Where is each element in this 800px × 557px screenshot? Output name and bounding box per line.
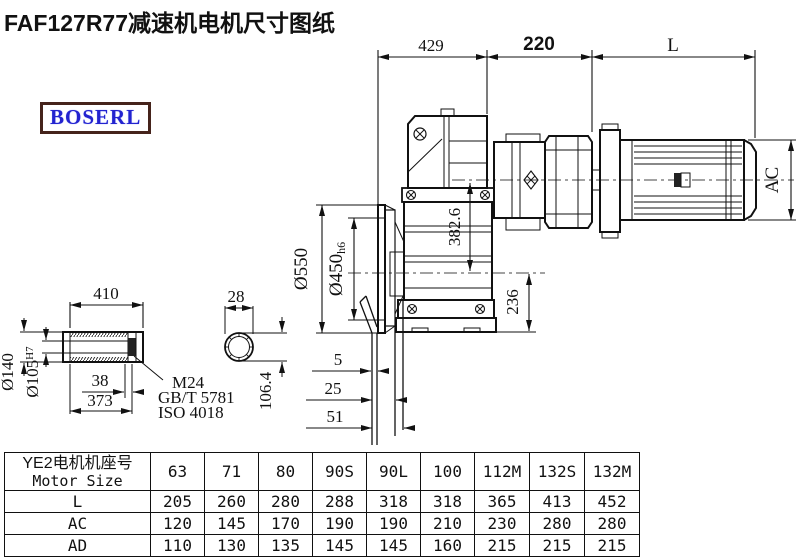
col-112M: 112M — [475, 453, 530, 491]
row-label-AD: AD — [5, 535, 151, 557]
cell: 452 — [585, 491, 640, 513]
motor-size-table: YE2电机机座号 Motor Size 63 71 80 90S 90L 100… — [4, 452, 640, 557]
cell: 280 — [530, 513, 585, 535]
cell: 145 — [313, 535, 367, 557]
label-iso4018: ISO 4018 — [158, 403, 224, 422]
cell: 215 — [475, 535, 530, 557]
table-header-row: YE2电机机座号 Motor Size 63 71 80 90S 90L 100… — [5, 453, 640, 491]
dim-L: L — [667, 35, 679, 56]
dim-5: 5 — [334, 350, 343, 369]
top-dimensions — [378, 50, 755, 205]
col-80: 80 — [259, 453, 313, 491]
cell: 365 — [475, 491, 530, 513]
dim-410: 410 — [93, 284, 119, 303]
dim-106-4: 106.4 — [256, 371, 275, 410]
col-90L: 90L — [367, 453, 421, 491]
col-100: 100 — [421, 453, 475, 491]
col-132M: 132M — [585, 453, 640, 491]
cell: 413 — [530, 491, 585, 513]
gearbox-housing — [390, 109, 496, 332]
cell: 260 — [205, 491, 259, 513]
cell: 215 — [585, 535, 640, 557]
col-63: 63 — [151, 453, 205, 491]
cell: 288 — [313, 491, 367, 513]
dim-25: 25 — [325, 379, 342, 398]
cell: 210 — [421, 513, 475, 535]
cell: 190 — [313, 513, 367, 535]
dim-51: 51 — [327, 407, 344, 426]
cell: 280 — [585, 513, 640, 535]
dim-AC: AC — [762, 167, 783, 193]
cell: 170 — [259, 513, 313, 535]
header-en: Motor Size — [5, 473, 150, 490]
cell: 120 — [151, 513, 205, 535]
cell: 318 — [367, 491, 421, 513]
cell: 280 — [259, 491, 313, 513]
dim-236: 236 — [503, 289, 522, 315]
cell: 145 — [205, 513, 259, 535]
header-motor-size: YE2电机机座号 Motor Size — [5, 453, 151, 491]
table-row-AD: AD 110 130 135 145 145 160 215 215 215 — [5, 535, 640, 557]
dim-140: Ø140 — [0, 353, 17, 391]
motor-body — [600, 124, 756, 238]
cell: 230 — [475, 513, 530, 535]
table-row-L: L 205 260 280 288 318 318 365 413 452 — [5, 491, 640, 513]
cell: 130 — [205, 535, 259, 557]
cell: 135 — [259, 535, 313, 557]
dim-38: 38 — [92, 371, 109, 390]
output-flange — [378, 205, 404, 333]
dim-382-6: 382.6 — [445, 208, 464, 246]
row-label-AC: AC — [5, 513, 151, 535]
cell: 205 — [151, 491, 205, 513]
cell: 160 — [421, 535, 475, 557]
col-71: 71 — [205, 453, 259, 491]
cell: 318 — [421, 491, 475, 513]
drawing-page: FAF127R77减速机电机尺寸图纸 BOSERL — [0, 0, 800, 557]
col-90S: 90S — [313, 453, 367, 491]
cell: 215 — [530, 535, 585, 557]
dim-429: 429 — [418, 36, 444, 55]
table-row-AC: AC 120 145 170 190 190 210 230 280 280 — [5, 513, 640, 535]
dim-220: 220 — [523, 34, 555, 55]
dim-373: 373 — [87, 391, 113, 410]
header-cn: YE2电机机座号 — [5, 454, 150, 473]
dim-450h6: Ø450h6 — [326, 242, 348, 296]
col-132S: 132S — [530, 453, 585, 491]
cell: 190 — [367, 513, 421, 535]
input-adapter — [494, 134, 600, 230]
cell: 110 — [151, 535, 205, 557]
row-label-L: L — [5, 491, 151, 513]
dim-offset-lines — [306, 371, 412, 428]
dim-105H7: Ø105H7 — [23, 346, 42, 398]
shaft-section — [225, 306, 287, 377]
cell: 145 — [367, 535, 421, 557]
dim-28: 28 — [228, 287, 245, 306]
dim-550: Ø550 — [291, 248, 312, 290]
